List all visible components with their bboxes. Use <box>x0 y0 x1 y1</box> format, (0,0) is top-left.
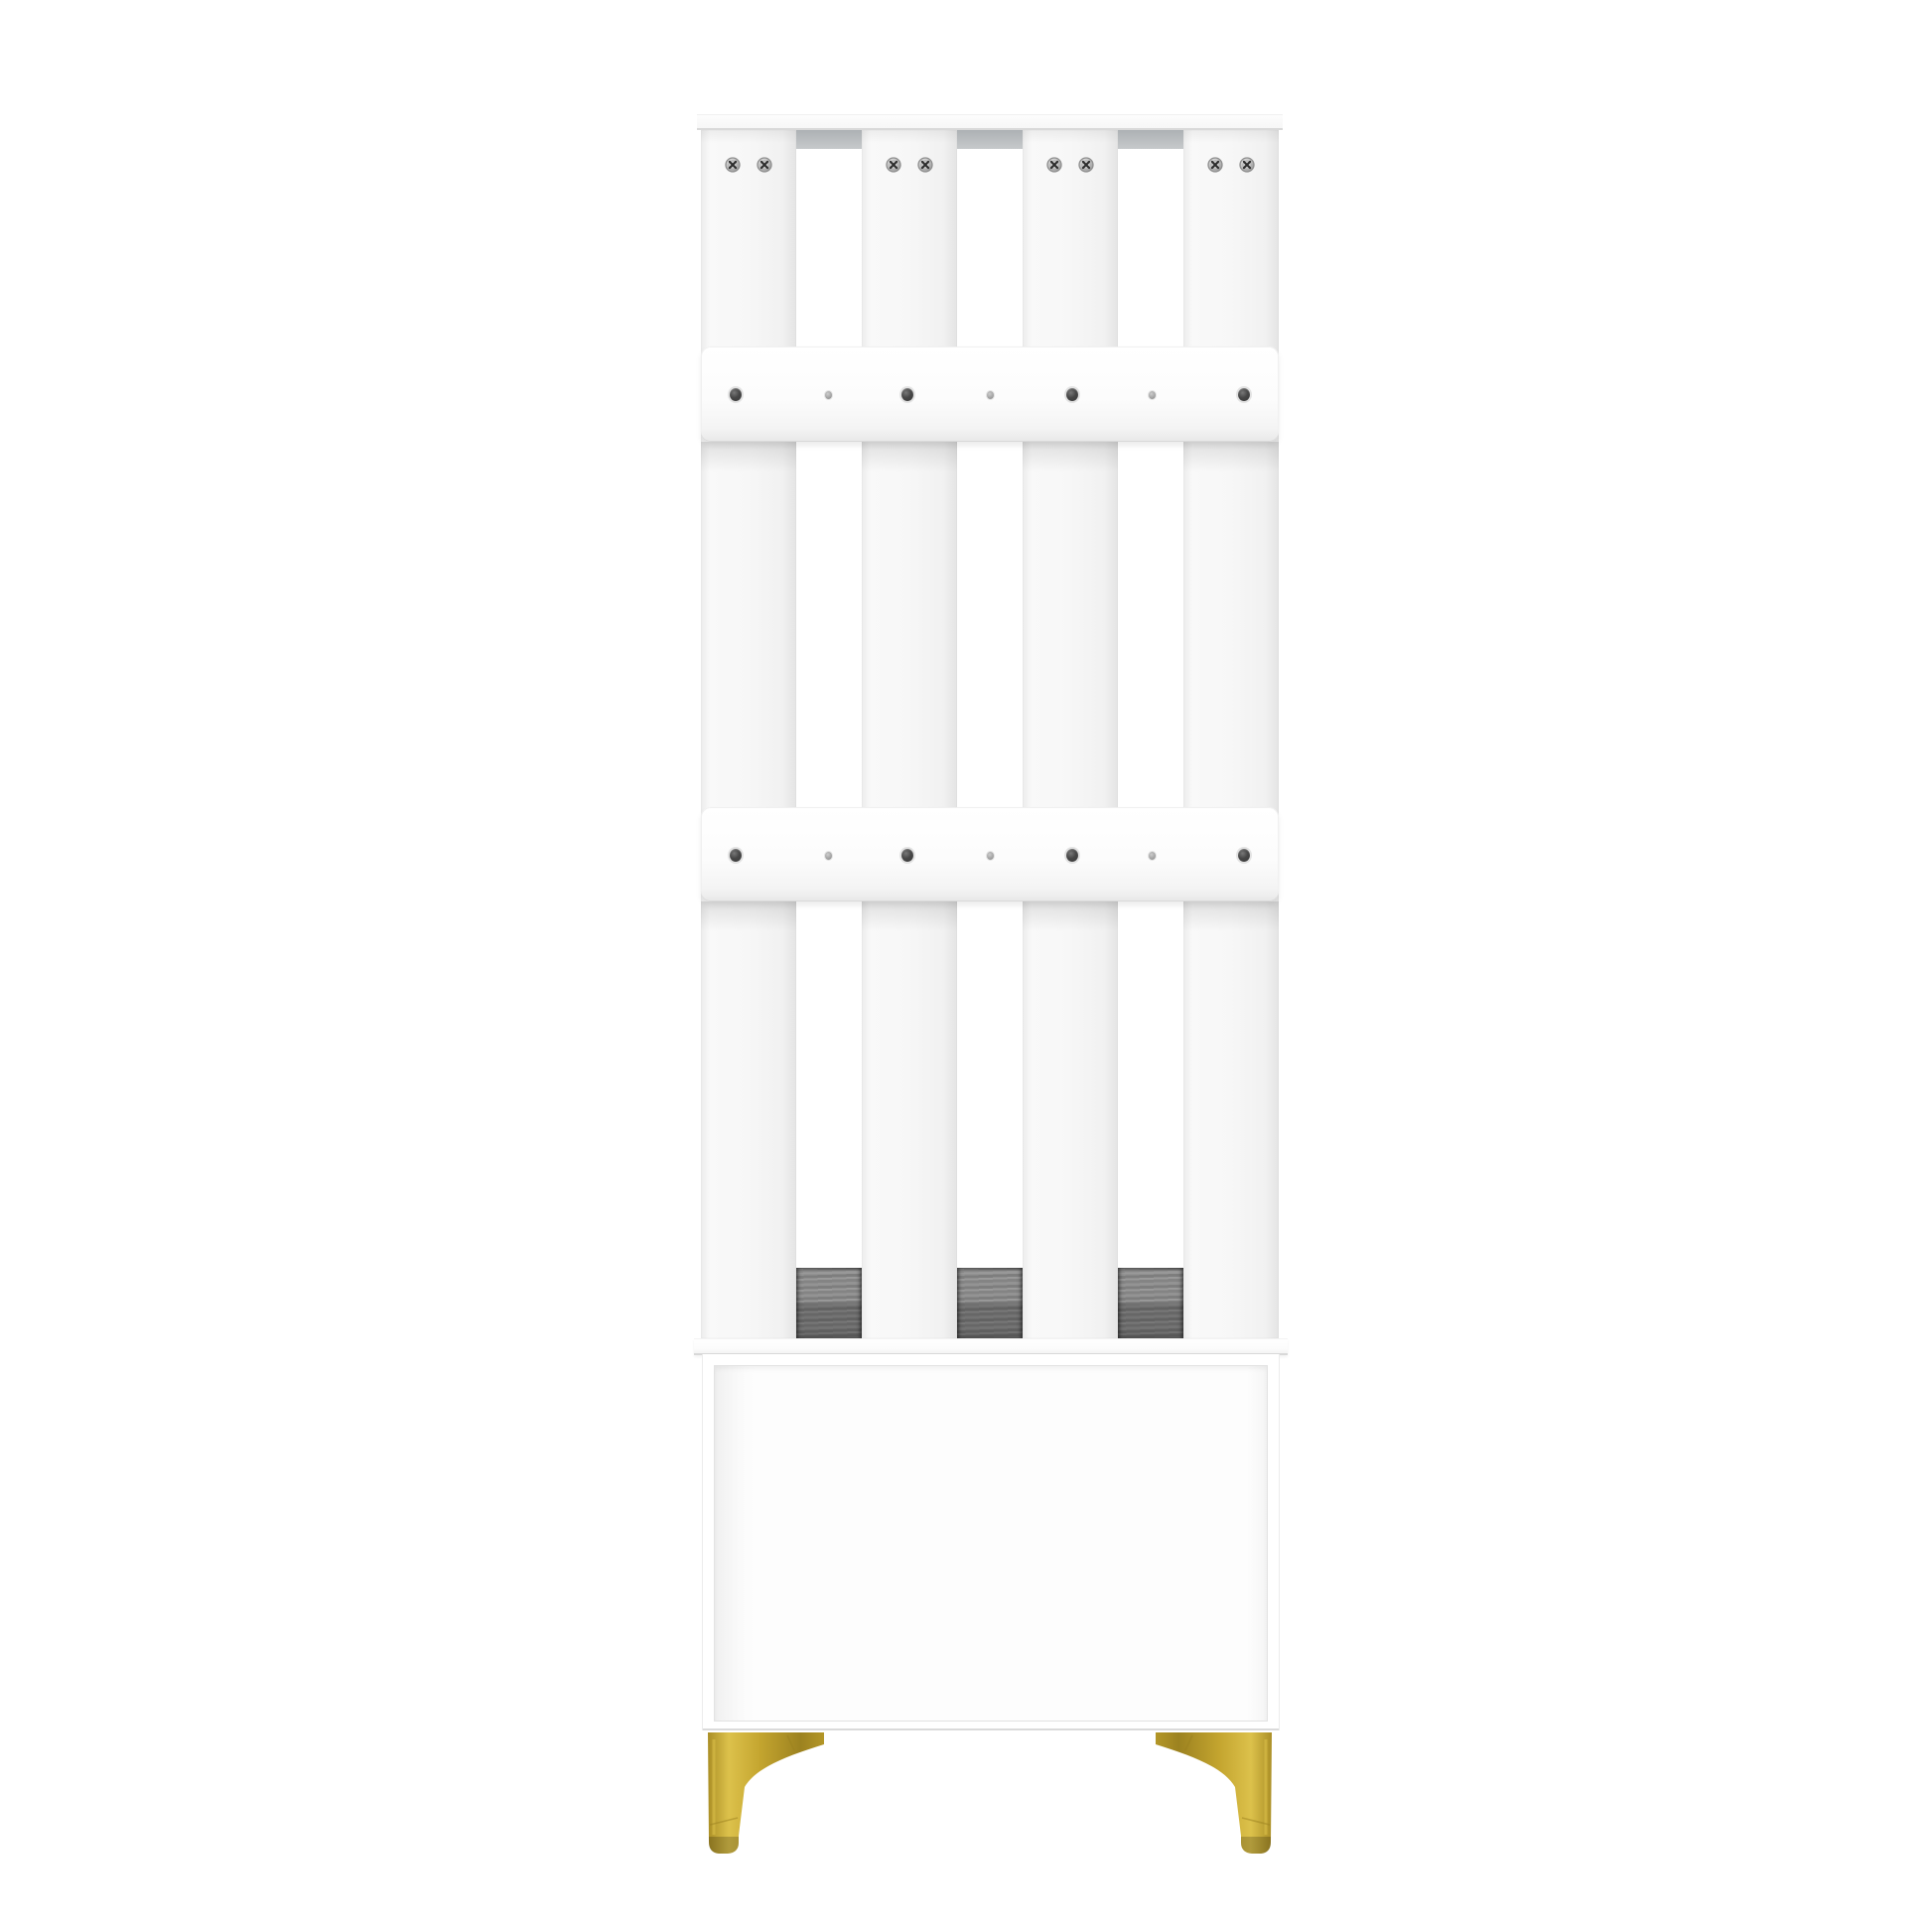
slat-shadow <box>1183 901 1279 931</box>
back-slat <box>1183 130 1279 1338</box>
screw-hole-small <box>825 852 832 860</box>
top-board <box>697 114 1283 130</box>
slat-shadow <box>1023 442 1118 472</box>
cabinet-back-panel <box>714 1365 1268 1722</box>
screw-hole-large <box>730 388 742 401</box>
screw-hole-large <box>901 849 913 862</box>
screw-hole-small <box>1149 391 1156 399</box>
screw-hole-small <box>1149 852 1156 860</box>
gap-shadow-strip <box>1118 130 1183 149</box>
back-slat <box>701 130 796 1338</box>
back-slat <box>862 130 957 1338</box>
slat-shadow <box>701 130 796 143</box>
slat-shadow <box>862 901 957 931</box>
slat-shadow <box>1183 442 1279 472</box>
wood-block <box>1118 1268 1183 1340</box>
screw-hole-large <box>1066 388 1078 401</box>
slat-shadow <box>1023 901 1118 931</box>
screw-hole-small <box>825 391 832 399</box>
hall-tree-back-view <box>0 0 1932 1932</box>
gap-shadow-strip <box>796 130 862 149</box>
wood-block <box>796 1268 862 1340</box>
screw-hole-large <box>730 849 742 862</box>
stage <box>0 0 1932 1932</box>
bench-board <box>694 1338 1288 1355</box>
screw-hole-large <box>1238 849 1250 862</box>
slat-shadow <box>862 442 957 472</box>
crossbar-upper <box>701 346 1279 442</box>
screw-hole-small <box>987 391 994 399</box>
back-slat <box>1023 130 1118 1338</box>
screw-hole-small <box>987 852 994 860</box>
gap-shadow-strip <box>957 130 1023 149</box>
screw-hole-large <box>1066 849 1078 862</box>
slat-shadow <box>862 130 957 143</box>
screw-hole-large <box>1238 388 1250 401</box>
crossbar-lower <box>701 807 1279 901</box>
slat-shadow <box>701 901 796 931</box>
slat-shadow <box>701 442 796 472</box>
wood-block <box>957 1268 1023 1340</box>
slat-shadow <box>1183 130 1279 143</box>
screw-hole-large <box>901 388 913 401</box>
slat-shadow <box>1023 130 1118 143</box>
